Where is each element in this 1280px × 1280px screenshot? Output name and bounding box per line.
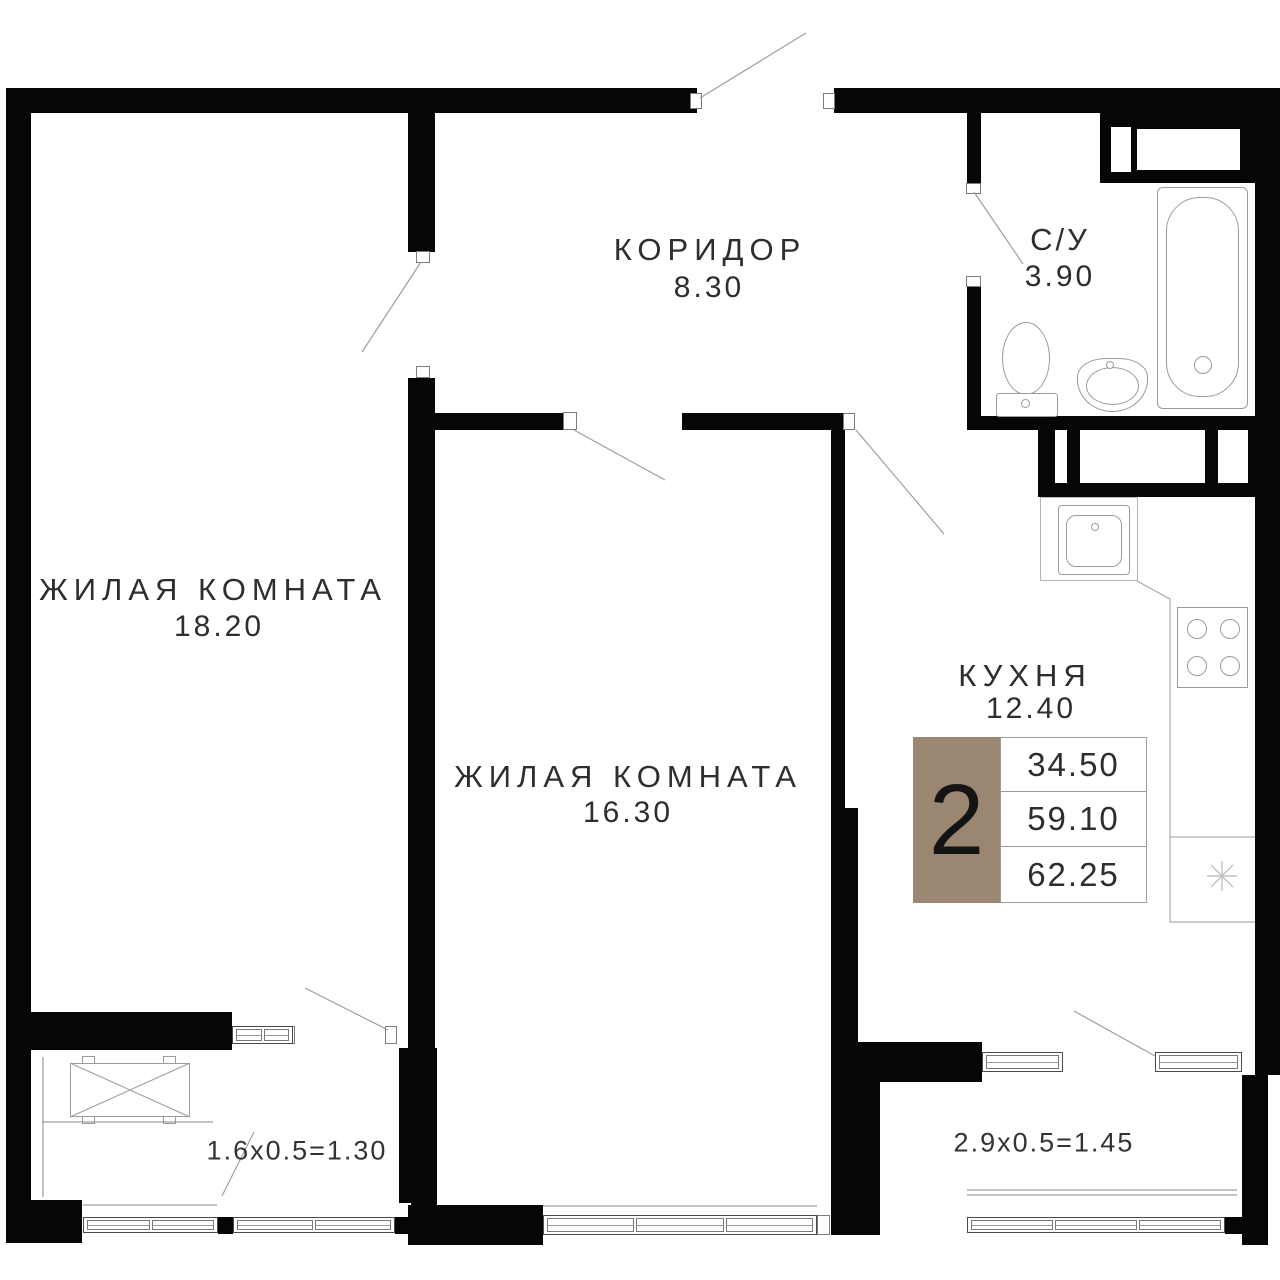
balcony1-door-swing bbox=[305, 988, 388, 1030]
apartment-rooms-count: 2 bbox=[929, 763, 985, 878]
apartment-badge-number-box: 2 bbox=[913, 737, 1000, 903]
kitchen-area: 12.40 bbox=[986, 692, 1076, 726]
corridor-area: 8.30 bbox=[674, 271, 744, 305]
kitchen-label: КУХНЯ bbox=[958, 658, 1092, 694]
bath-door-swing bbox=[974, 192, 1023, 264]
kitchen-balcony-door-swing bbox=[1074, 1011, 1155, 1056]
kitchen-counter-outline bbox=[1137, 581, 1255, 922]
room2-area: 16.30 bbox=[583, 796, 673, 830]
kitchen-door-swing bbox=[856, 430, 944, 534]
balcony-left-dimension: 1.6x0.5=1.30 bbox=[207, 1136, 388, 1167]
room2-label: ЖИЛАЯ КОМНАТА bbox=[454, 759, 802, 795]
apartment-badge-area-3: 62.25 bbox=[1000, 846, 1147, 903]
floor-plan: ЖИЛАЯ КОМНАТА 18.20 ЖИЛАЯ КОМНАТА 16.30 … bbox=[0, 0, 1280, 1280]
apartment-badge-area-1: 34.50 bbox=[1000, 737, 1147, 792]
bathroom-area: 3.90 bbox=[1025, 260, 1095, 294]
balcony-right-slab-line bbox=[967, 1190, 1237, 1195]
wardrobe-base-line bbox=[42, 1057, 213, 1197]
room1-label: ЖИЛАЯ КОМНАТА bbox=[39, 572, 387, 608]
bathroom-label: С/У bbox=[1030, 222, 1090, 258]
corridor-label: КОРИДОР bbox=[614, 232, 807, 268]
room1-door-swing bbox=[362, 262, 421, 352]
apartment-badge-area-2: 59.10 bbox=[1000, 791, 1147, 847]
room1-area: 18.20 bbox=[174, 610, 264, 644]
wardrobe-x bbox=[70, 1063, 190, 1117]
room2-door-swing bbox=[574, 430, 665, 480]
fridge-asterisk-icon bbox=[1207, 861, 1237, 891]
balcony-right-dimension: 2.9x0.5=1.45 bbox=[954, 1128, 1135, 1159]
entrance-door-swing bbox=[700, 33, 806, 98]
